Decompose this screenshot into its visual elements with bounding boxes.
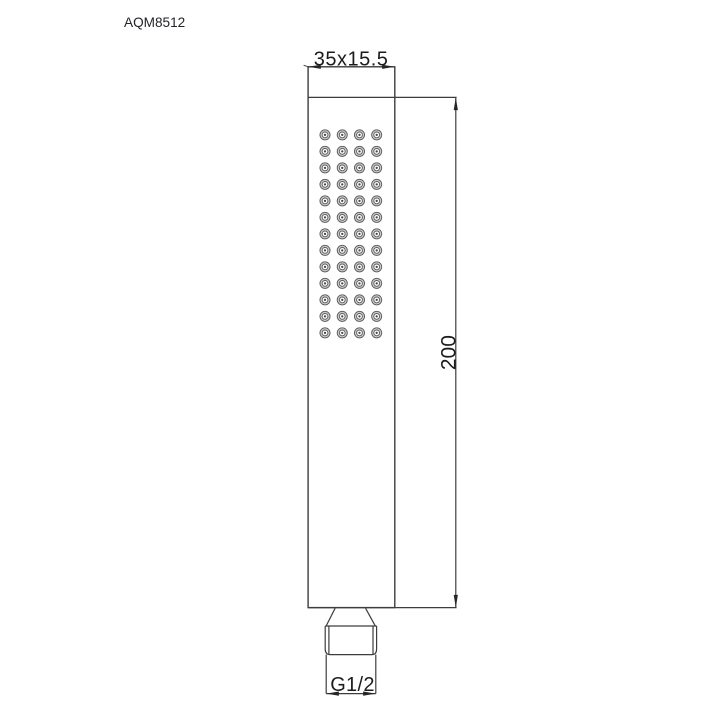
svg-text:AQM8512: AQM8512 [124,15,185,30]
svg-text:G1/2: G1/2 [330,674,375,696]
svg-text:200: 200 [438,335,461,370]
svg-text:35x15.5: 35x15.5 [314,49,389,71]
